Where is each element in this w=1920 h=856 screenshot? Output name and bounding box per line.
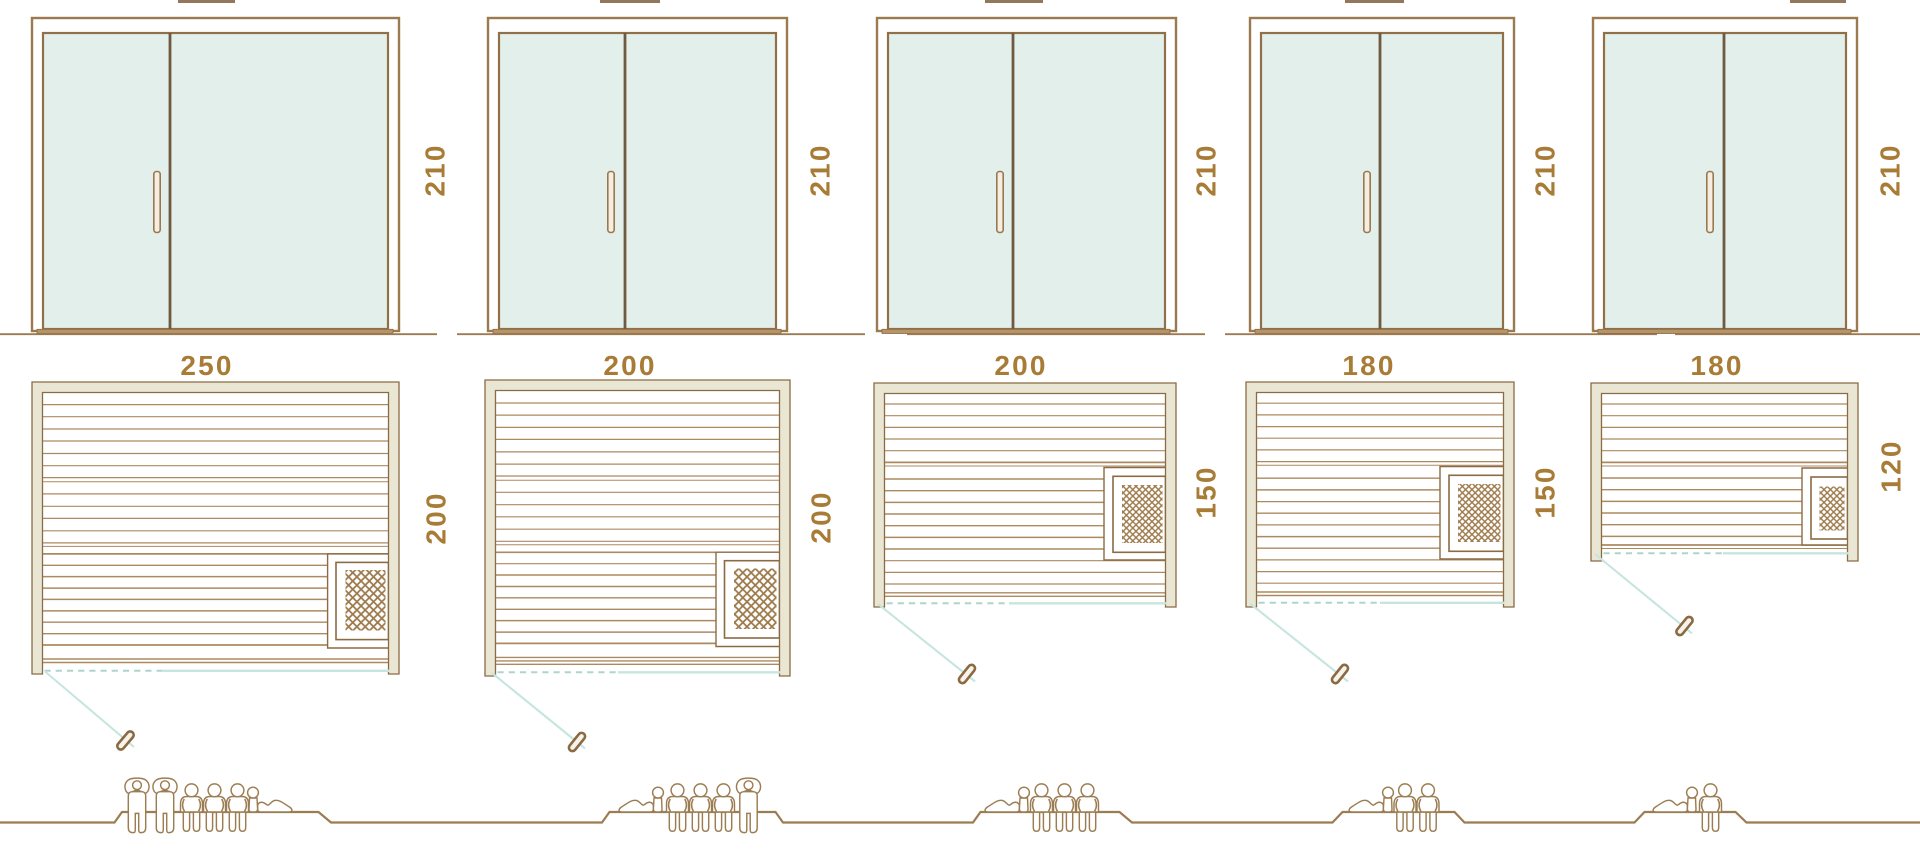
svg-text:250: 250 (180, 350, 233, 381)
svg-text:180: 180 (1342, 350, 1395, 381)
svg-text:150: 150 (1530, 465, 1561, 518)
svg-text:210: 210 (420, 143, 451, 196)
svg-text:200: 200 (603, 350, 656, 381)
svg-text:180: 180 (1690, 350, 1743, 381)
svg-text:200: 200 (421, 491, 452, 544)
svg-text:210: 210 (1875, 143, 1906, 196)
svg-text:200: 200 (806, 490, 837, 543)
svg-text:210: 210 (1191, 143, 1222, 196)
svg-text:150: 150 (1191, 465, 1222, 518)
svg-text:210: 210 (805, 143, 836, 196)
svg-text:200: 200 (994, 350, 1047, 381)
svg-text:120: 120 (1876, 439, 1907, 492)
svg-text:210: 210 (1530, 143, 1561, 196)
